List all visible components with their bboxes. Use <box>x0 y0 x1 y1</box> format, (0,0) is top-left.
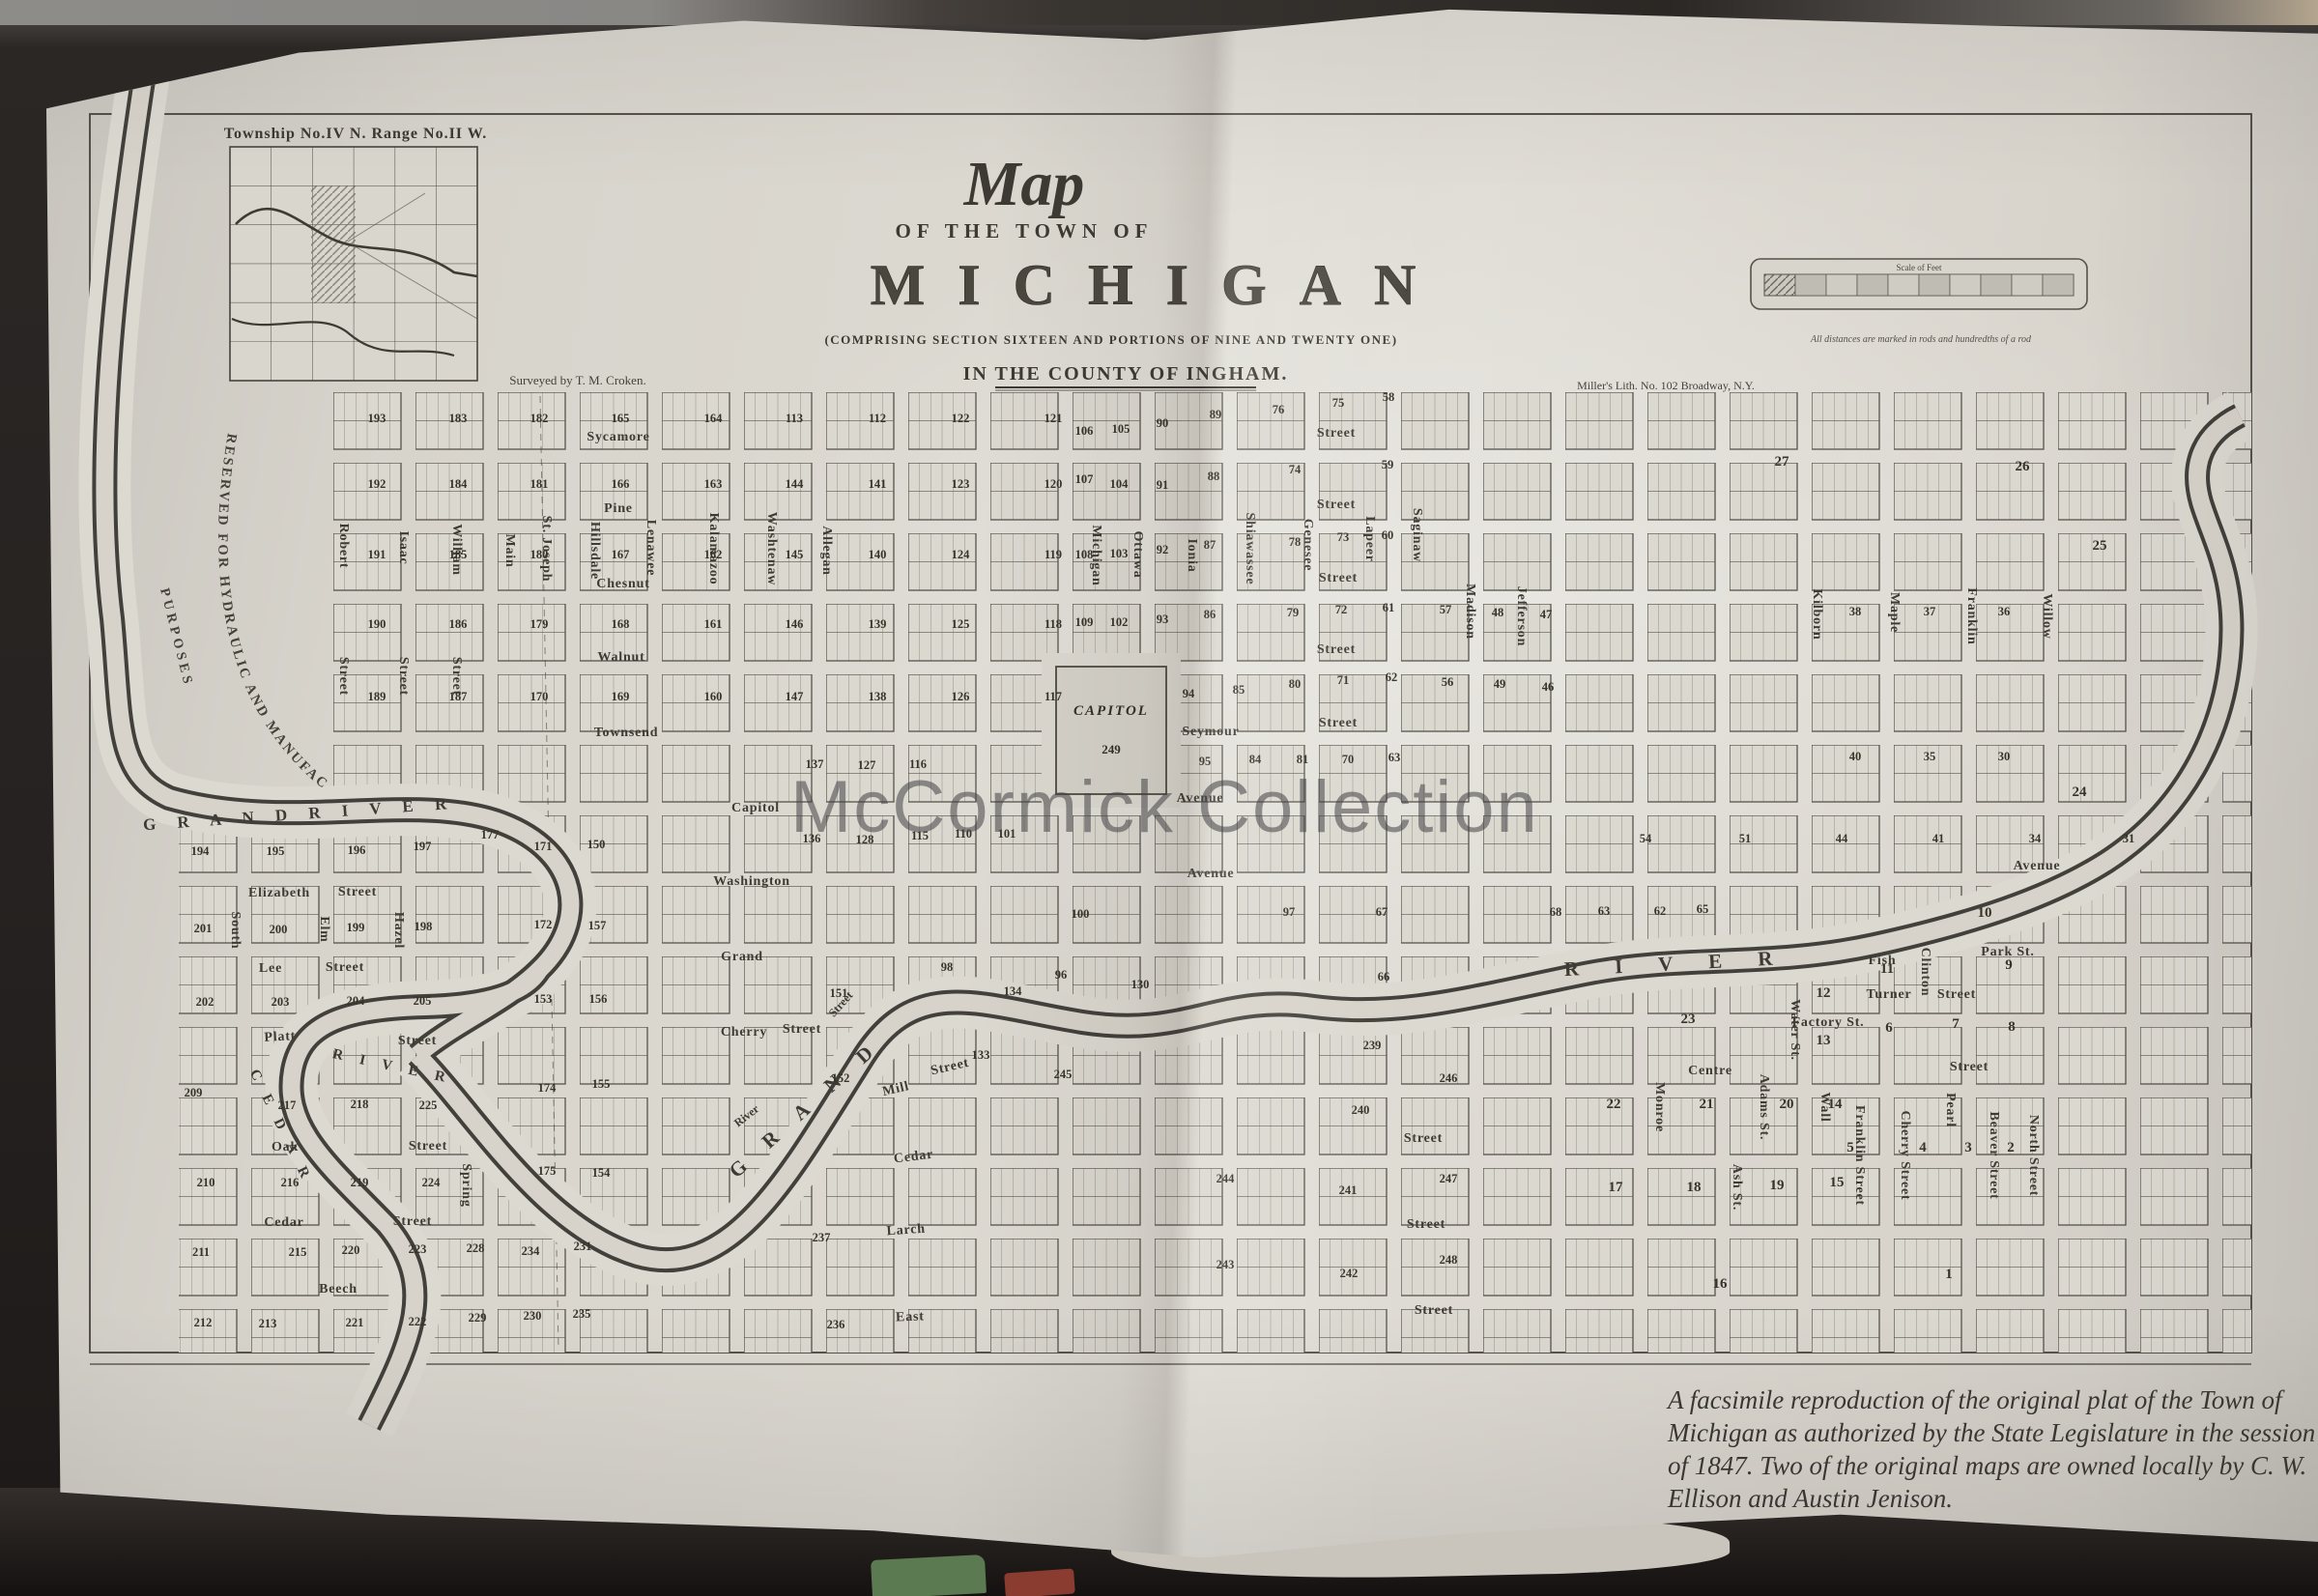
block-number: 239 <box>1363 1039 1382 1052</box>
street-label: Washtenaw <box>764 512 779 586</box>
street-label: Monroe <box>1652 1082 1667 1132</box>
street-label: East <box>896 1309 925 1325</box>
block-number: 61 <box>1383 601 1395 614</box>
block-number: 3 <box>1964 1140 1972 1155</box>
block-number: 161 <box>704 617 723 631</box>
block-number: 44 <box>1836 832 1848 845</box>
block-number: 237 <box>813 1231 831 1244</box>
green-paper-edge <box>871 1554 987 1596</box>
block-number: 151 <box>830 986 848 1000</box>
street-label: Street <box>1317 426 1356 441</box>
block-number: 154 <box>592 1166 612 1180</box>
block-number: 2 <box>2007 1140 2015 1155</box>
block-number: 104 <box>1110 477 1130 491</box>
block-number: 130 <box>1131 978 1150 991</box>
street-label: Street <box>1950 1060 1989 1074</box>
street-label: South <box>228 911 243 949</box>
block-number: 85 <box>1233 683 1245 697</box>
block-number: 184 <box>449 477 469 491</box>
block-number: 220 <box>342 1243 360 1257</box>
block-number: 97 <box>1283 905 1296 919</box>
block-number: 211 <box>192 1245 210 1259</box>
street-label: Kilborn <box>1810 588 1824 640</box>
block-number: 46 <box>1542 680 1555 694</box>
caption-line: A facsimile reproduction of the original… <box>1668 1383 2318 1416</box>
reserved-note-arc: RESERVED FOR HYDRAULIC AND MANUFACTURING <box>0 0 331 793</box>
block-number: 202 <box>196 995 215 1009</box>
block-number: 171 <box>534 840 553 853</box>
block-number: 125 <box>952 617 970 631</box>
block-number: 1 <box>1945 1267 1953 1282</box>
block-number: 22 <box>1607 1097 1621 1112</box>
block-number: 14 <box>1828 1097 1844 1112</box>
street-label: Avenue <box>2014 859 2061 873</box>
block-number: 231 <box>574 1240 592 1253</box>
block-number: 209 <box>185 1086 203 1099</box>
street-label: Beech <box>319 1282 358 1297</box>
block-number: 228 <box>467 1241 485 1255</box>
block-number: 103 <box>1110 547 1129 560</box>
street-label: Street <box>409 1139 447 1154</box>
street-label: Sycamore <box>587 430 649 444</box>
block-number: 225 <box>419 1098 438 1112</box>
block-number: 193 <box>368 412 386 425</box>
block-number: 145 <box>786 548 804 561</box>
block-number: 49 <box>1494 677 1506 691</box>
street-label: Elizabeth <box>248 886 310 900</box>
block-number: 47 <box>1540 608 1553 621</box>
street-label: Street <box>393 1214 432 1229</box>
block-number: 106 <box>1075 424 1094 438</box>
block-number: 126 <box>952 690 970 703</box>
block-number: 234 <box>522 1244 541 1258</box>
block-number: 96 <box>1055 968 1068 982</box>
block-number: 236 <box>827 1318 845 1331</box>
block-number: 240 <box>1352 1103 1370 1117</box>
block-number: 51 <box>1739 832 1752 845</box>
reserved-area-note: RESERVED FOR HYDRAULIC AND MANUFACTURING… <box>0 0 331 793</box>
block-number: 102 <box>1110 615 1129 629</box>
block-number: 15 <box>1830 1175 1845 1190</box>
photograph-of-plat-map: CAPITOL249Township No.IV N. Range No.II … <box>0 0 2318 1596</box>
block-number: 174 <box>538 1081 558 1095</box>
block-number: 144 <box>786 477 805 491</box>
block-number: 89 <box>1210 408 1222 421</box>
block-number: 168 <box>612 617 630 631</box>
street-label: Main <box>502 533 517 567</box>
street-label: Pearl <box>1943 1093 1958 1127</box>
street-label: Street <box>1317 498 1356 512</box>
street-label: Street <box>398 1034 437 1048</box>
block-number: 244 <box>1216 1172 1236 1185</box>
red-paper-edge <box>1004 1569 1075 1596</box>
lithographer-credit: Miller's Lith. No. 102 Broadway, N.Y. <box>1577 379 1755 392</box>
block-number: 120 <box>1045 477 1063 491</box>
block-number: 218 <box>351 1097 369 1111</box>
block-number: 8 <box>2008 1019 2016 1035</box>
block-number: 248 <box>1440 1253 1458 1267</box>
block-number: 7 <box>1952 1016 1960 1032</box>
block-number: 235 <box>573 1307 591 1321</box>
block-number: 162 <box>704 548 723 561</box>
block-number: 87 <box>1204 538 1216 552</box>
block-number: 76 <box>1273 403 1285 416</box>
block-number: 196 <box>348 843 366 857</box>
block-number: 197 <box>414 840 432 853</box>
block-number: 241 <box>1339 1183 1358 1197</box>
block-number: 194 <box>191 844 211 858</box>
block-number: 30 <box>1998 750 2011 763</box>
block-number: 94 <box>1183 687 1195 700</box>
block-number: 5 <box>1846 1140 1854 1155</box>
street-label: Spring <box>459 1163 473 1207</box>
inset-title: Township No.IV N. Range No.II W. <box>224 126 488 142</box>
block-number: 60 <box>1382 528 1394 542</box>
block-number: 56 <box>1442 675 1454 689</box>
block-number: 74 <box>1289 463 1302 476</box>
block-number: 23 <box>1681 1012 1696 1027</box>
street-label: Street <box>1415 1303 1453 1318</box>
block-number: 81 <box>1297 753 1309 766</box>
block-number: 165 <box>612 412 630 425</box>
street-label: Street <box>1407 1217 1445 1232</box>
block-number: 124 <box>952 548 971 561</box>
block-number: 78 <box>1289 535 1302 549</box>
block-number: 215 <box>289 1245 307 1259</box>
block-number: 156 <box>589 992 608 1006</box>
block-number: 19 <box>1770 1178 1785 1193</box>
block-number: 181 <box>530 477 549 491</box>
block-number: 246 <box>1440 1071 1458 1085</box>
title-block: MapOF THE TOWN OFMICHIGAN(COMPRISING SEC… <box>509 149 1755 392</box>
facsimile-caption: A facsimile reproduction of the original… <box>1668 1383 2318 1515</box>
scale-bar-note: All distances are marked in rods and hun… <box>1810 334 2032 345</box>
block-number: 6 <box>1885 1020 1893 1036</box>
street-label: Ottawa <box>1130 530 1145 578</box>
block-number: 16 <box>1713 1276 1729 1292</box>
block-number: 62 <box>1386 670 1398 684</box>
title-map-word: Map <box>963 149 1085 219</box>
block-number: 187 <box>449 690 468 703</box>
block-number: 141 <box>869 477 887 491</box>
block-number: 123 <box>952 477 970 491</box>
block-number: 20 <box>1780 1097 1794 1112</box>
block-number: 164 <box>704 412 724 425</box>
block-number: 190 <box>368 617 386 631</box>
street-label: Shiawassee <box>1243 513 1257 585</box>
block-number: 105 <box>1112 422 1130 436</box>
street-label: Willow <box>2040 593 2054 639</box>
capitol-block-number: 249 <box>1102 742 1121 756</box>
street-label: Lenawee <box>644 520 658 576</box>
block-number: 17 <box>1609 1180 1624 1195</box>
block-number: 117 <box>1045 690 1062 703</box>
block-number: 229 <box>469 1311 487 1325</box>
surveyor-credit: Surveyed by T. M. Croken. <box>509 373 645 387</box>
reserved-note-tail: PURPOSES <box>157 586 195 689</box>
block-number: 108 <box>1075 548 1094 561</box>
block-number: 169 <box>612 690 630 703</box>
block-number: 223 <box>409 1242 427 1256</box>
street-label: Turner <box>1866 987 1911 1002</box>
block-number: 92 <box>1157 543 1169 556</box>
block-number: 160 <box>704 690 723 703</box>
street-label: Street <box>783 1022 821 1037</box>
block-number: 86 <box>1204 608 1216 621</box>
street-label: Street <box>326 960 364 975</box>
street-label: Lapeer <box>1362 516 1377 562</box>
block-number: 84 <box>1249 753 1262 766</box>
block-number: 27 <box>1775 454 1790 470</box>
street-label: Grand <box>721 950 763 964</box>
street-label: Street <box>338 885 377 899</box>
block-number: 73 <box>1337 530 1350 544</box>
street-label: Washington <box>713 874 790 889</box>
block-number: 70 <box>1342 753 1355 766</box>
block-number: 18 <box>1687 1180 1702 1195</box>
block-number: 146 <box>786 617 804 631</box>
block-number: 230 <box>524 1309 542 1323</box>
block-number: 93 <box>1157 613 1169 626</box>
block-number: 203 <box>272 995 290 1009</box>
caption-line: Ellison and Austin Jenison. <box>1668 1482 2318 1515</box>
block-number: 175 <box>538 1164 557 1178</box>
watermark-text: McCormick Collection <box>790 765 1539 849</box>
block-number: 67 <box>1376 905 1388 919</box>
block-number: 36 <box>1998 605 2011 618</box>
title-county-line: IN THE COUNTY OF INGHAM. <box>963 363 1289 385</box>
scale-bar: Scale of FeetAll distances are marked in… <box>1751 259 2087 345</box>
background-shelf-edge <box>0 0 2318 25</box>
street-label: Ash St. <box>1730 1164 1744 1211</box>
block-number: 63 <box>1598 904 1611 918</box>
street-label: Larch <box>886 1222 926 1240</box>
block-number: 62 <box>1654 904 1667 918</box>
block-number: 155 <box>592 1077 611 1091</box>
block-number: 25 <box>2093 538 2107 554</box>
block-number: 204 <box>347 994 366 1008</box>
block-number: 150 <box>587 838 606 851</box>
block-number: 41 <box>1932 832 1945 845</box>
block-number: 170 <box>530 690 549 703</box>
block-number: 219 <box>351 1176 369 1189</box>
title-comprising-line: (COMPRISING SECTION SIXTEEN AND PORTIONS… <box>824 332 1397 347</box>
block-number: 48 <box>1492 606 1504 619</box>
block-number: 222 <box>409 1315 427 1328</box>
block-number: 191 <box>368 548 386 561</box>
street-label: Saginaw <box>1410 508 1424 562</box>
block-number: 147 <box>786 690 804 703</box>
block-number: 112 <box>869 412 886 425</box>
block-number: 10 <box>1978 905 1992 921</box>
block-number: 13 <box>1817 1033 1831 1048</box>
block-number: 98 <box>941 960 954 974</box>
street-label: Allegan <box>819 526 834 576</box>
street-label: Cherry Street <box>1898 1111 1912 1201</box>
block-number: 182 <box>530 412 549 425</box>
block-number: 121 <box>1045 412 1063 425</box>
block-number: 167 <box>612 548 630 561</box>
street-label: Street <box>1317 642 1356 657</box>
block-number: 210 <box>197 1176 215 1189</box>
street-label: Pine <box>604 501 633 516</box>
street-label: Avenue <box>1188 867 1235 881</box>
street-label: Isaac <box>396 530 411 564</box>
street-label: North Street <box>2026 1115 2041 1196</box>
street-label: Oak <box>272 1140 299 1154</box>
block-number: 54 <box>1640 832 1652 845</box>
block-number: 66 <box>1378 970 1390 983</box>
block-number: 9 <box>2005 957 2013 973</box>
street-label: Capitol <box>731 801 780 815</box>
street-label: Ionia <box>1185 538 1199 572</box>
capitol-label: CAPITOL <box>1073 703 1149 719</box>
block-number: 71 <box>1337 673 1350 687</box>
street-label: Seymour <box>1182 725 1239 739</box>
block-number: 186 <box>449 617 468 631</box>
block-number: 21 <box>1700 1097 1714 1112</box>
block-number: 216 <box>281 1176 300 1189</box>
street-label: Genesee <box>1301 519 1315 572</box>
block-number: 113 <box>786 412 803 425</box>
block-number: 35 <box>1924 750 1936 763</box>
street-label: Platt <box>264 1029 297 1045</box>
block-number: 213 <box>259 1317 277 1330</box>
block-number: 26 <box>2016 459 2031 474</box>
block-number: 224 <box>422 1176 442 1189</box>
block-number: 118 <box>1045 617 1062 631</box>
street-label: Chesnut <box>596 577 649 591</box>
street-label: Maple <box>1887 592 1902 633</box>
block-number: 157 <box>588 919 607 932</box>
block-number: 172 <box>534 918 553 931</box>
block-number: 177 <box>481 828 500 841</box>
street-label: Clinton <box>1918 948 1932 997</box>
street-label: Street <box>1319 571 1358 585</box>
block-number: 59 <box>1382 458 1394 471</box>
block-number: 24 <box>2073 784 2088 800</box>
block-number: 134 <box>1004 984 1023 998</box>
street-label: Centre <box>1688 1064 1732 1078</box>
block-number: 185 <box>449 548 468 561</box>
block-number: 75 <box>1332 396 1345 410</box>
street-label: Beaver Street <box>1987 1111 2001 1199</box>
street-label: Hillsdale <box>587 522 602 580</box>
street-label: Jefferson <box>1514 586 1529 646</box>
block-number: 133 <box>972 1048 990 1062</box>
street-label: Madison <box>1463 584 1477 640</box>
block-number: 247 <box>1440 1172 1458 1185</box>
street-label: Adams St. <box>1757 1074 1771 1141</box>
block-number: 122 <box>952 412 970 425</box>
block-number: 245 <box>1054 1068 1073 1081</box>
title-of-line: OF THE TOWN OF <box>895 219 1153 242</box>
block-number: 212 <box>194 1316 213 1329</box>
block-number: 58 <box>1383 390 1395 404</box>
street-label: Cedar <box>264 1215 303 1230</box>
caption-line: Michigan as authorized by the State Legi… <box>1668 1416 2318 1449</box>
block-number: 40 <box>1849 750 1862 763</box>
block-number: 11 <box>1880 961 1894 977</box>
block-number: 31 <box>2123 832 2135 845</box>
street-label: Water St. <box>1788 999 1802 1061</box>
street-label: Townsend <box>594 726 659 740</box>
block-number: 4 <box>1919 1140 1927 1155</box>
block-number: 138 <box>869 690 887 703</box>
block-number: 140 <box>869 548 887 561</box>
block-number: 200 <box>270 923 288 936</box>
block-number: 90 <box>1157 416 1169 430</box>
block-number: 166 <box>612 477 630 491</box>
street-label: Walnut <box>597 650 644 665</box>
block-number: 153 <box>534 992 553 1006</box>
block-number: 68 <box>1550 905 1562 919</box>
block-number: 192 <box>368 477 386 491</box>
block-number: 37 <box>1924 605 1936 618</box>
block-number: 179 <box>530 617 549 631</box>
street-label: Robert <box>336 524 351 569</box>
block-number: 57 <box>1440 603 1452 616</box>
block-number: 100 <box>1072 907 1090 921</box>
scale-bar-label: Scale of Feet <box>1897 263 1942 272</box>
title-town-name: MICHIGAN <box>871 253 1449 317</box>
block-number: 163 <box>704 477 723 491</box>
block-number: 139 <box>869 617 887 631</box>
block-number: 243 <box>1216 1258 1235 1271</box>
street-label: Franklin Street <box>1852 1105 1867 1206</box>
township-inset-map: Township No.IV N. Range No.II W. <box>224 126 488 381</box>
block-number: 12 <box>1817 985 1831 1001</box>
block-number: 195 <box>267 844 285 858</box>
block-number: 88 <box>1208 470 1220 483</box>
street-label: Elm <box>317 916 331 942</box>
street-label: Street <box>396 657 411 696</box>
block-number: 119 <box>1045 548 1062 561</box>
block-number: 201 <box>194 922 213 935</box>
block-number: 152 <box>832 1071 850 1085</box>
block-number: 217 <box>278 1098 297 1112</box>
block-number: 107 <box>1075 472 1094 486</box>
block-number: 79 <box>1287 606 1300 619</box>
street-label: Street <box>336 657 351 696</box>
block-number: 242 <box>1340 1267 1359 1280</box>
block-number: 109 <box>1075 615 1094 629</box>
street-label: Street <box>1937 987 1976 1002</box>
block-number: 72 <box>1335 603 1348 616</box>
block-number: 198 <box>415 920 433 933</box>
block-number: 221 <box>346 1316 364 1329</box>
caption-line: of 1847. Two of the original maps are ow… <box>1668 1449 2318 1482</box>
street-label: Street <box>1404 1131 1443 1146</box>
street-label: Lee <box>259 961 282 976</box>
street-label: Franklin <box>1964 587 1979 644</box>
block-number: 80 <box>1289 677 1302 691</box>
street-label: Hazel <box>391 912 406 949</box>
block-number: 65 <box>1697 902 1709 916</box>
block-number: 199 <box>347 921 365 934</box>
block-number: 91 <box>1157 478 1169 492</box>
block-number: 205 <box>414 994 432 1008</box>
block-number: 180 <box>530 548 549 561</box>
block-number: 189 <box>368 690 386 703</box>
block-number: 63 <box>1388 751 1401 764</box>
street-label: Street <box>1319 716 1358 730</box>
map-sheet: CAPITOL249Township No.IV N. Range No.II … <box>0 0 2318 1596</box>
block-number: 38 <box>1849 605 1862 618</box>
block-number: 34 <box>2029 832 2042 845</box>
block-number: 183 <box>449 412 468 425</box>
street-label: Cherry <box>721 1025 767 1040</box>
